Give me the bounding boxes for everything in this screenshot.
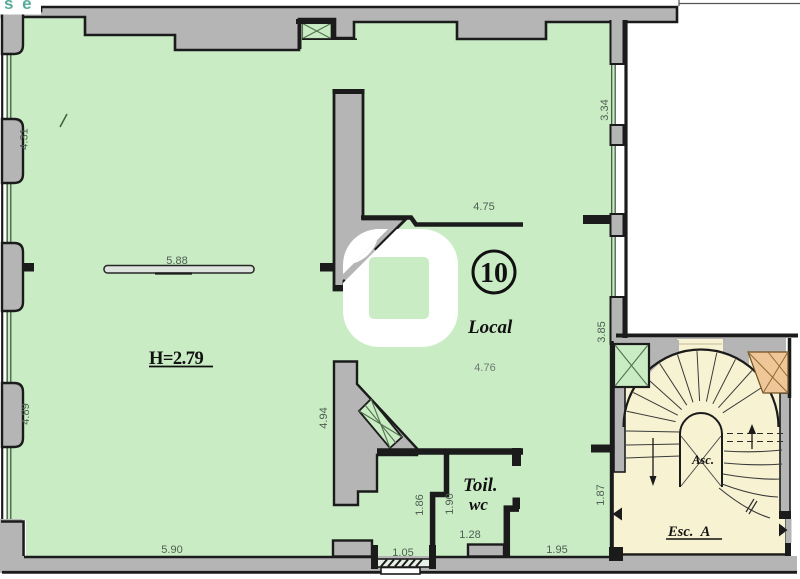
svg-text:3.34: 3.34 bbox=[599, 99, 611, 120]
svg-text:s e: s e bbox=[4, 0, 34, 13]
svg-text:1.86: 1.86 bbox=[414, 494, 426, 515]
svg-text:wc: wc bbox=[469, 495, 488, 514]
svg-text:1.87: 1.87 bbox=[595, 484, 607, 505]
svg-text:Esc. A: Esc. A bbox=[667, 524, 711, 540]
svg-text:5.88: 5.88 bbox=[166, 255, 187, 267]
svg-text:1.95: 1.95 bbox=[546, 544, 567, 556]
svg-text:4.75: 4.75 bbox=[473, 201, 494, 213]
svg-text:1.05: 1.05 bbox=[392, 547, 413, 559]
svg-text:Asc.: Asc. bbox=[691, 453, 714, 467]
svg-text:4.89: 4.89 bbox=[20, 403, 32, 424]
svg-text:4.94: 4.94 bbox=[318, 407, 330, 428]
svg-text:Local: Local bbox=[467, 317, 513, 338]
svg-text:1.28: 1.28 bbox=[459, 529, 480, 541]
svg-text:5.90: 5.90 bbox=[161, 544, 182, 556]
svg-text:10: 10 bbox=[480, 258, 508, 289]
svg-text:1.90: 1.90 bbox=[444, 493, 456, 514]
svg-text:Toil.: Toil. bbox=[463, 475, 498, 496]
svg-text:3.85: 3.85 bbox=[596, 321, 608, 342]
svg-text:4.76: 4.76 bbox=[474, 362, 495, 374]
svg-text:4.31: 4.31 bbox=[19, 128, 31, 149]
